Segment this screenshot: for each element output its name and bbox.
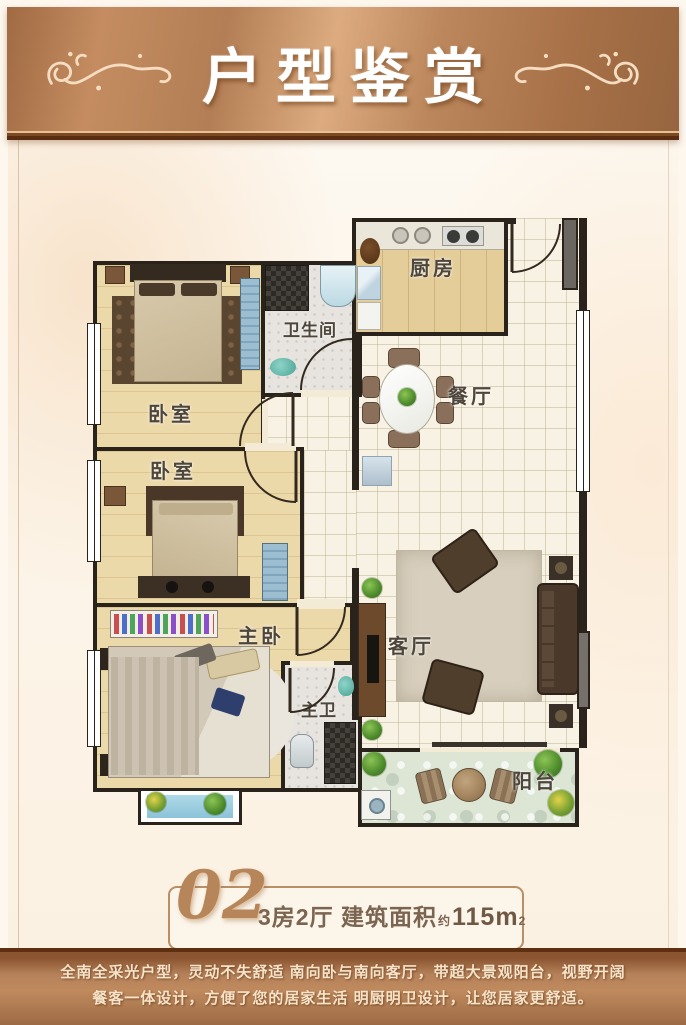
master-throw	[210, 687, 245, 717]
opening-balcony	[420, 748, 560, 752]
dining-chair-left-2	[362, 402, 380, 424]
balcony-washer-door	[369, 798, 385, 814]
bedroom-middle-wardrobe	[262, 543, 288, 601]
master-bed	[108, 646, 270, 778]
plant-bay-left-icon	[146, 792, 166, 812]
living-side-table-bottom-decor	[555, 710, 567, 722]
flourish-left-icon	[42, 43, 174, 101]
opening-master-bath	[290, 661, 334, 667]
master-bath-toilet	[290, 734, 314, 768]
kitchen-sink-bowl-1	[392, 227, 409, 244]
header-inner: 户型鉴赏	[7, 17, 679, 127]
room-label-bedroom-middle: 卧室	[150, 455, 196, 484]
room-label-bedroom-top: 卧室	[148, 398, 194, 427]
room-label-bathroom: 卫生间	[283, 316, 337, 341]
bedroom-middle-nightstand	[104, 486, 126, 506]
kitchen-burner-2	[466, 230, 479, 243]
living-side-table-bottom	[549, 704, 573, 728]
window-bedroom-middle	[87, 460, 101, 562]
footer-text: 全南全采光户型，灵动不失舒适 南向卧与南向客厅，带超大景观阳台，视野开阔 餐客一…	[0, 960, 686, 1013]
living-plant-top-icon	[362, 578, 382, 598]
balcony-slider-door	[432, 742, 547, 747]
master-bath-sink	[338, 676, 354, 696]
kitchen-stove	[442, 226, 484, 246]
master-bath-shower	[324, 722, 356, 784]
living-tv-cabinet	[358, 603, 386, 717]
living-side-table-top-decor	[555, 562, 567, 574]
bathroom-sink	[320, 265, 356, 307]
balcony-plant-left-icon	[362, 752, 386, 776]
master-books	[114, 614, 214, 634]
bedroom-middle-bed	[152, 500, 238, 588]
header-band: 户型鉴赏	[7, 7, 679, 140]
bathroom-shower	[265, 265, 309, 311]
opening-bathroom	[301, 390, 352, 397]
hall-cabinet	[362, 456, 392, 486]
wall-entry-stub	[506, 218, 516, 224]
opening-bedroom-top	[262, 399, 268, 445]
opening-bedroom-middle	[245, 443, 296, 451]
bedroom-top-nightstand-left	[105, 266, 125, 284]
page-title: 户型鉴赏	[188, 29, 498, 116]
room-label-master-bedroom: 主卧	[238, 620, 284, 649]
window-bedroom-top	[87, 323, 101, 425]
kitchen-board	[360, 238, 380, 264]
living-side-table-top	[549, 556, 573, 580]
unit-area-approx: 约	[438, 912, 451, 929]
dining-chair-left-1	[362, 376, 380, 398]
footer-line-1: 全南全采光户型，灵动不失舒适 南向卧与南向客厅，带超大景观阳台，视野开阔	[0, 960, 686, 986]
unit-number: 02	[176, 856, 268, 934]
kitchen-sink-bowl-2	[414, 227, 431, 244]
footer-band: 全南全采光户型，灵动不失舒适 南向卧与南向客厅，带超大景观阳台，视野开阔 餐客一…	[0, 948, 686, 1025]
footer-line-2: 餐客一体设计，方便了您的居家生活 明厨明卫设计，让您居家更舒适。	[0, 986, 686, 1012]
room-label-balcony: 阳台	[512, 765, 558, 794]
entry-door-jamb	[562, 218, 578, 290]
kitchen-burner-1	[447, 230, 460, 243]
corridor-floor-upper	[265, 395, 356, 450]
bedroom-middle-dresser	[138, 576, 250, 598]
unit-area-sup: 2	[519, 914, 527, 928]
unit-info-line: 3房2厅 建筑面积约115m2	[258, 898, 526, 932]
balcony-washer	[361, 790, 391, 820]
header-bottom-rule	[7, 131, 679, 140]
plant-bay-right-icon	[204, 793, 226, 815]
bedroom-middle-stool-1	[166, 581, 178, 593]
bedroom-top-pillow-left	[139, 283, 175, 296]
living-plant-bottom-icon	[362, 720, 382, 740]
bedroom-middle-pillows	[159, 503, 233, 515]
room-label-kitchen: 厨房	[410, 252, 456, 281]
balcony-table	[452, 768, 486, 802]
living-sofa-cushions	[542, 591, 554, 687]
opening-master-bedroom	[297, 599, 345, 609]
bedroom-middle-stool-2	[202, 581, 214, 593]
flourish-right-icon	[512, 43, 644, 101]
wall-corridor-upper	[352, 334, 359, 490]
bedroom-top-pillow-right	[181, 283, 217, 296]
bedroom-top-bed	[134, 280, 222, 382]
kitchen-fridge	[357, 302, 381, 330]
dining-table-plant-icon	[398, 388, 416, 406]
room-label-dining: 餐厅	[448, 380, 494, 409]
window-master-bedroom	[87, 650, 101, 747]
unit-desc: 3房2厅 建筑面积	[258, 898, 437, 932]
bathroom-toilet	[270, 358, 296, 376]
bedroom-top-wardrobe	[240, 278, 260, 370]
window-dining-right	[576, 310, 590, 492]
room-label-living: 客厅	[388, 630, 434, 659]
flyer-page: 户型鉴赏	[0, 0, 686, 1025]
corridor-floor-lower	[304, 450, 356, 607]
kitchen-appliance-upper	[357, 266, 381, 300]
living-tv	[367, 635, 379, 683]
master-quilt	[111, 657, 199, 775]
room-label-master-bath: 主卫	[301, 696, 337, 721]
unit-area-value: 115m	[452, 903, 519, 932]
master-bookshelf	[110, 610, 218, 638]
living-sofa	[537, 583, 579, 695]
